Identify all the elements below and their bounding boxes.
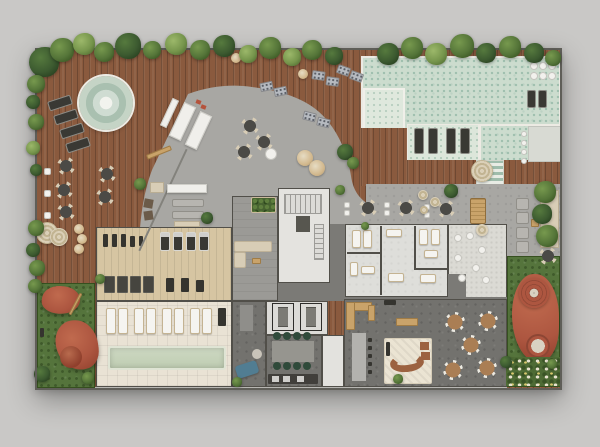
tree [213,35,235,57]
edge-bush [27,75,45,93]
edge-bush [26,95,40,109]
edge-bush [28,279,42,293]
tree [499,36,521,58]
tree [450,34,474,58]
edge-bush [28,114,44,130]
edge-bush [29,260,45,276]
tree [302,40,322,60]
plan-frame [35,48,562,390]
edge-bush [30,164,42,176]
tree [239,45,257,63]
tree [115,33,141,59]
tree [325,47,343,65]
tree [165,33,187,55]
floor-plan-render [0,0,600,447]
tree [401,37,423,59]
tree [476,43,496,63]
tree [73,33,95,55]
tree [377,43,399,65]
tree [524,43,544,63]
tree [259,37,281,59]
tree [190,40,210,60]
tree [94,42,114,62]
edge-bush [26,141,40,155]
tree [143,41,161,59]
edge-bush [26,243,40,257]
tree [283,48,301,66]
edge-bush [28,220,44,236]
tree [545,50,561,66]
tree [50,38,74,62]
tree [425,43,447,65]
